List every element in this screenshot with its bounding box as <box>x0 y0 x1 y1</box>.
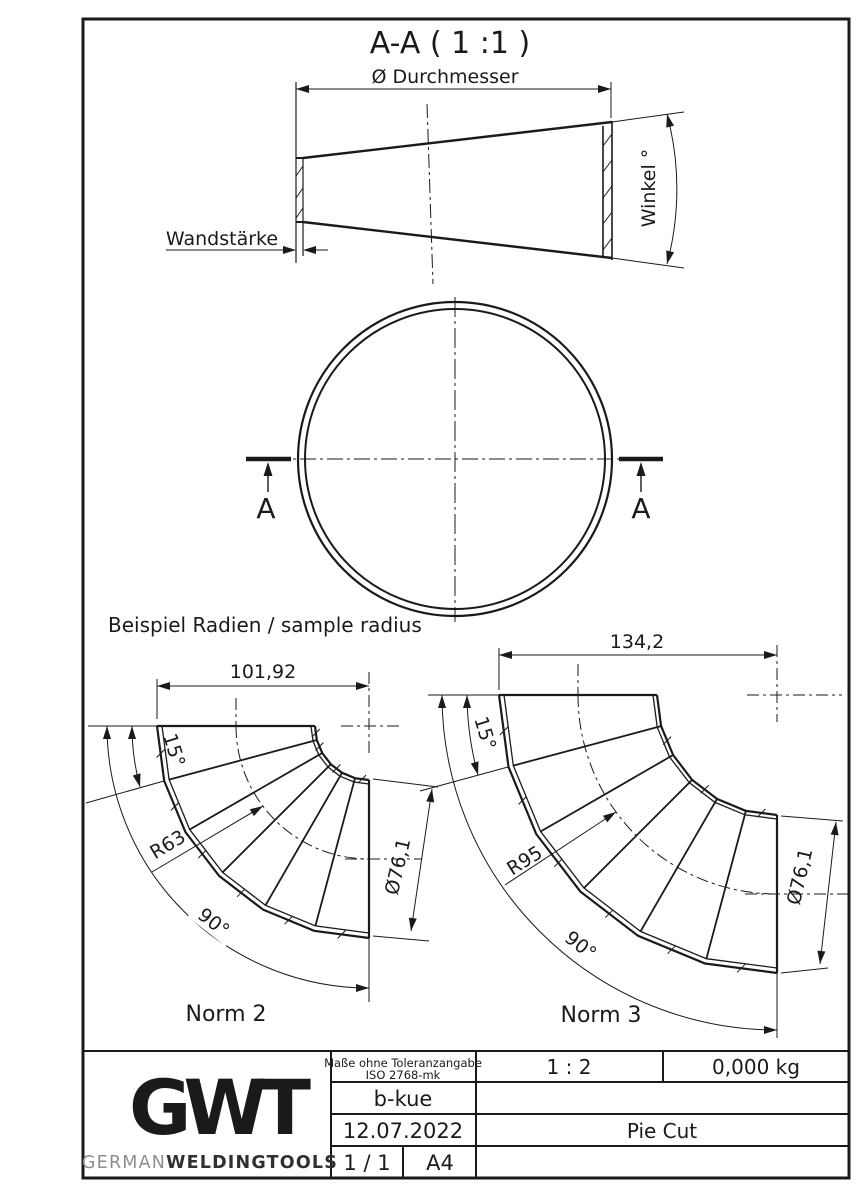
norm2-total-angle: 90° <box>188 898 241 946</box>
norm3-diameter: Ø76,1 <box>783 846 817 907</box>
norm2-diameter: Ø76,1 <box>381 836 415 897</box>
norm2-seams <box>169 740 355 926</box>
norm3-segment-angle: 15° <box>469 714 500 753</box>
norm2-name: Norm 2 <box>186 1002 267 1027</box>
right-wall-hatch <box>603 134 612 250</box>
norm2-radius: R63 <box>146 826 189 864</box>
section-mark-right: A <box>631 492 650 525</box>
circle-view <box>246 297 663 622</box>
norm2-width: 101,92 <box>230 661 296 683</box>
technical-drawing: A-A ( 1 :1 ) Ø Durchmesser Wandstärke Wi… <box>0 0 868 1199</box>
section-title: A-A ( 1 :1 ) <box>370 26 530 61</box>
gwt-logo: GWT <box>129 1063 311 1152</box>
brand-bold-part: WELDINGTOOLS <box>166 1153 338 1173</box>
brand-wordmark: GERMANWELDINGTOOLS <box>82 1153 338 1173</box>
drawing-sheet: A-A ( 1 :1 ) Ø Durchmesser Wandstärke Wi… <box>0 0 868 1199</box>
section-arrow-right <box>637 462 646 476</box>
left-wall-hatch <box>296 166 303 218</box>
brand-gray-part: GERMAN <box>82 1153 166 1173</box>
norm3-total-angle: 90° <box>555 921 608 969</box>
part-name: Pie Cut <box>627 1119 697 1143</box>
winkel-arc <box>667 114 677 264</box>
author-value: b-kue <box>374 1087 433 1111</box>
norm3-radius: R95 <box>503 842 546 880</box>
date-value: 12.07.2022 <box>343 1119 463 1143</box>
example-heading: Beispiel Radien / sample radius <box>108 613 422 637</box>
wall-thickness-label: Wandstärke <box>166 228 278 250</box>
norm3-name: Norm 3 <box>561 1003 642 1028</box>
angle-label: Winkel ° <box>638 149 660 228</box>
norm2-drawing <box>86 672 438 1002</box>
diameter-label: Ø Durchmesser <box>371 66 518 88</box>
sheet-value: 1 / 1 <box>343 1151 390 1175</box>
norm3-drawing <box>420 645 853 1038</box>
norm3-width: 134,2 <box>610 631 664 653</box>
format-value: A4 <box>426 1151 454 1175</box>
cone-centerline <box>427 104 433 284</box>
section-mark-left: A <box>256 492 275 525</box>
scale-value: 1 : 2 <box>547 1055 592 1079</box>
weight-value: 0,000 kg <box>712 1055 800 1079</box>
section-arrow-left <box>264 462 273 476</box>
tolerance-note-line2: ISO 2768-mk <box>366 1068 441 1082</box>
section-view-cone <box>166 82 684 284</box>
